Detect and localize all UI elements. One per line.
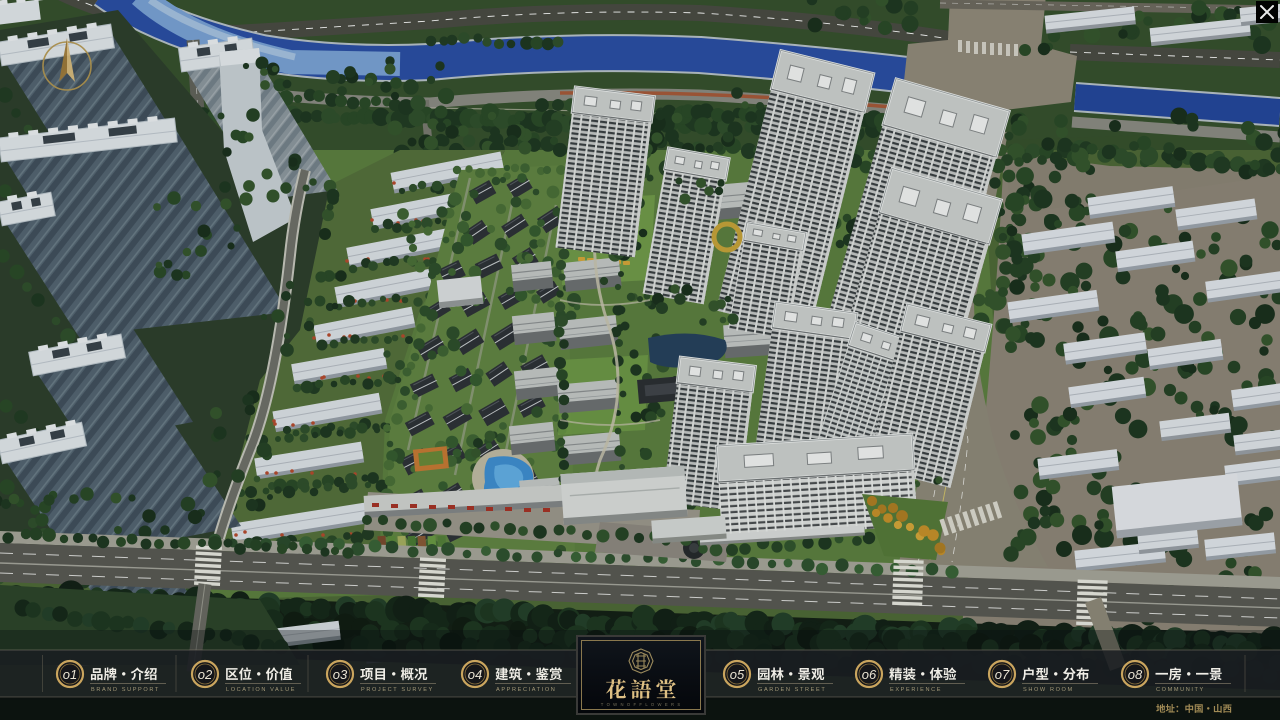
svg-text:o3: o3 — [333, 667, 348, 682]
svg-text:EXPERIENCE: EXPERIENCE — [890, 687, 942, 693]
svg-text:BRAND SUPPORT: BRAND SUPPORT — [91, 687, 160, 693]
svg-text:o2: o2 — [198, 667, 213, 682]
svg-text:o8: o8 — [1128, 667, 1143, 682]
svg-text:o5: o5 — [730, 667, 745, 682]
svg-text:SHOW ROOM: SHOW ROOM — [1023, 687, 1074, 693]
svg-text:APPRECIATION: APPRECIATION — [496, 687, 556, 693]
svg-text:o4: o4 — [468, 667, 482, 682]
svg-text:GARDEN STREET: GARDEN STREET — [758, 687, 826, 693]
svg-text:o1: o1 — [63, 667, 77, 682]
svg-text:T O W N O F F L O W E R S: T O W N O F F L O W E R S — [601, 702, 682, 707]
svg-text:o6: o6 — [862, 667, 877, 682]
svg-text:COMMUNITY: COMMUNITY — [1156, 687, 1205, 693]
svg-text:LOCATION VALUE: LOCATION VALUE — [226, 687, 296, 693]
svg-text:PROJECT SURVEY: PROJECT SURVEY — [361, 687, 434, 693]
svg-text:o7: o7 — [995, 667, 1010, 682]
